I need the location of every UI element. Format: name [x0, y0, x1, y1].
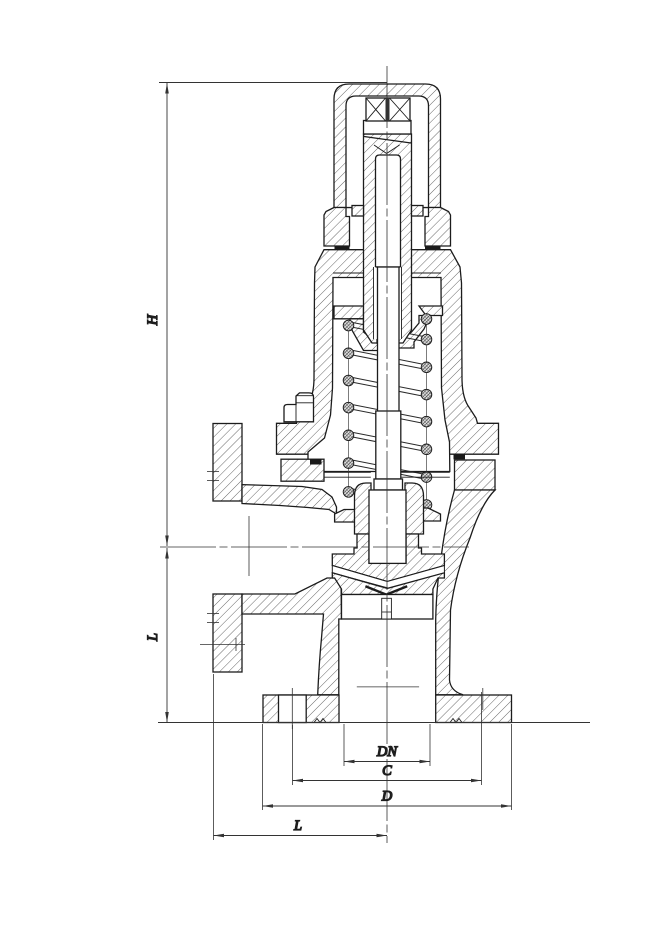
- svg-text:L: L: [293, 818, 302, 834]
- svg-text:DN: DN: [376, 744, 398, 760]
- svg-text:L: L: [145, 633, 161, 642]
- svg-text:H: H: [145, 313, 161, 326]
- svg-text:C: C: [382, 763, 392, 779]
- svg-text:D: D: [381, 789, 393, 805]
